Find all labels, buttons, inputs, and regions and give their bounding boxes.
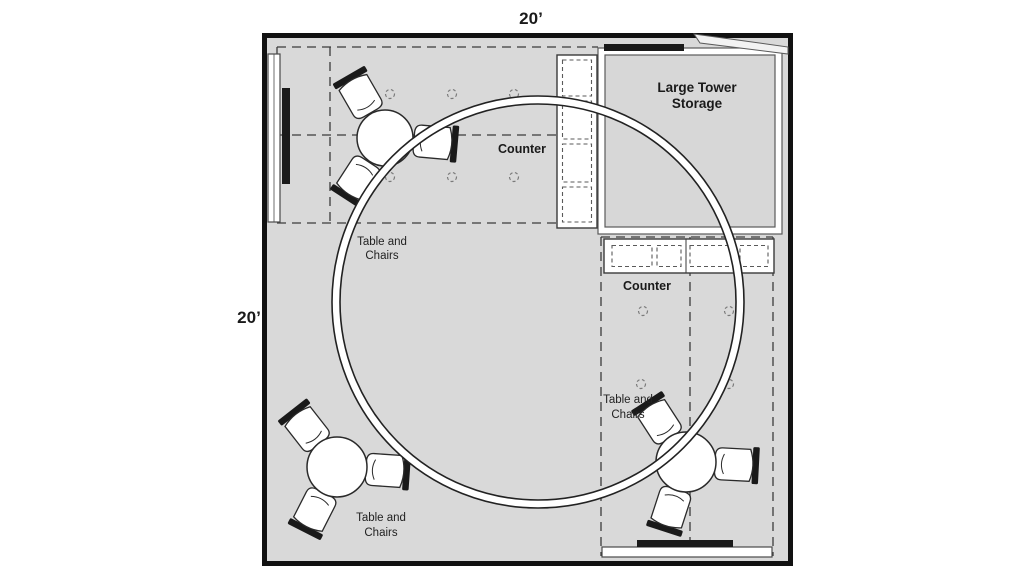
header-sign-bar (604, 44, 684, 51)
bottom-wall-panel (602, 547, 772, 557)
table-label-3-line1: Table and (603, 394, 653, 406)
counter-horizontal (604, 239, 774, 273)
floor-plan-canvas: 20’ 20’ Large Tower Storage Counter Coun… (0, 0, 1024, 576)
table-label-1-line1: Table and (357, 236, 407, 248)
floor-plan-svg: 20’ 20’ Large Tower Storage Counter Coun… (0, 0, 1024, 576)
counter-horizontal-top (604, 239, 774, 273)
round-table (357, 110, 413, 166)
dimension-label-top: 20’ (519, 9, 543, 28)
counter-vertical-label: Counter (498, 142, 546, 156)
table-label-3-line2: Chairs (611, 409, 644, 421)
table-label-2-line2: Chairs (364, 527, 397, 539)
left-graphic-bar (282, 88, 290, 184)
round-table (307, 437, 367, 497)
counter-vertical (557, 55, 597, 228)
bottom-graphic-bar (637, 540, 733, 547)
dimension-label-left: 20’ (237, 308, 261, 327)
storage-label-line2: Storage (672, 96, 723, 111)
counter-horizontal-label: Counter (623, 279, 671, 293)
storage-label-line1: Large Tower (657, 80, 737, 95)
table-label-2-line1: Table and (356, 512, 406, 524)
table-label-1-line2: Chairs (365, 250, 398, 262)
